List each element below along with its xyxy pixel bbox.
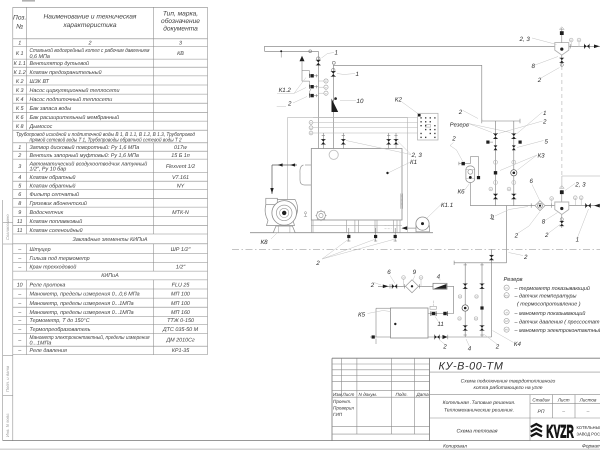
svg-text:Схема тепловая: Схема тепловая (456, 429, 497, 435)
svg-text:м: м (459, 296, 461, 299)
svg-text:К1.1: К1.1 (441, 202, 453, 209)
svg-text:Лист: Лист (342, 392, 355, 397)
svg-text:ШЗК ВТ: ШЗК ВТ (30, 79, 50, 85)
svg-text:м: м (403, 277, 405, 280)
svg-text:NY: NY (177, 183, 185, 189)
svg-text:Штуцер: Штуцер (30, 247, 51, 253)
svg-text:Резерв: Резерв (504, 277, 523, 283)
svg-text:К8: К8 (261, 239, 269, 246)
svg-text:2: 2 (315, 260, 320, 267)
svg-text:1: 1 (576, 236, 579, 243)
svg-text:м: м (508, 188, 510, 191)
svg-text:Проект.: Проект. (333, 399, 351, 404)
svg-text:Котельная .Типовые решения.: Котельная .Типовые решения. (443, 400, 516, 406)
svg-text:2: 2 (287, 101, 292, 108)
svg-text:Водосчетчик: Водосчетчик (30, 210, 64, 216)
svg-text:Клапан соленоидный: Клапан соленоидный (30, 228, 83, 234)
svg-text:м: м (551, 198, 553, 201)
svg-text:м: м (506, 311, 508, 315)
svg-text:1/2": 1/2" (176, 265, 186, 271)
svg-text:ДМ 2010Сг: ДМ 2010Сг (165, 338, 195, 344)
svg-text:тс: тс (505, 293, 509, 297)
svg-text:Клапан предохранительный: Клапан предохранительный (30, 70, 102, 76)
svg-text:– термометр показывающий: – термометр показывающий (514, 286, 590, 292)
svg-text:Вентиль запорный муфтовый: Ру: Вентиль запорный муфтовый: Ру 1,6 МПа (30, 153, 139, 159)
svg-text:Клапан обратный: Клапан обратный (30, 175, 76, 181)
svg-text:м: м (310, 122, 312, 125)
svg-text:0...1МПа: 0...1МПа (30, 340, 52, 346)
svg-text:К 1.1: К 1.1 (14, 61, 26, 67)
svg-text:Бак расширительный мембранный: Бак расширительный мембранный (30, 115, 120, 121)
svg-text:Стадия: Стадия (532, 397, 550, 402)
svg-text:2: 2 (542, 119, 547, 126)
svg-text:Копировал: Копировал (443, 444, 467, 450)
svg-text:КР1-35: КР1-35 (172, 348, 191, 354)
svg-text:1: 1 (356, 71, 359, 78)
svg-text:К6: К6 (458, 188, 466, 195)
svg-text:Фильтр сетчатый: Фильтр сетчатый (30, 192, 79, 198)
svg-text:5: 5 (545, 139, 549, 146)
svg-text:2: 2 (458, 109, 463, 116)
svg-text:3: 3 (179, 40, 182, 46)
svg-text:6: 6 (530, 178, 534, 185)
svg-text:мэ: мэ (505, 328, 509, 332)
svg-text:1: 1 (335, 50, 338, 57)
svg-text:10: 10 (17, 283, 23, 289)
svg-text:К 5: К 5 (16, 106, 25, 112)
svg-text:Манометр, пределы измерения: Манометр, пределы измерения 0...1МПа (30, 301, 134, 307)
svg-text:15 Б 1п: 15 Б 1п (171, 153, 189, 159)
svg-text:Flexvent 1/2: Flexvent 1/2 (166, 164, 195, 170)
svg-text:11: 11 (437, 321, 443, 328)
svg-text:4: 4 (18, 175, 21, 181)
svg-text:Затвор дисковый поворотный: Р: Затвор дисковый поворотный: Ру 1,6 МПа (30, 145, 140, 151)
svg-text:Закладные элементы КИПиА: Закладные элементы КИПиА (73, 237, 148, 243)
svg-text:м: м (475, 318, 477, 321)
svg-text:Термометр, Т до 150°С: Термометр, Т до 150°С (30, 318, 90, 324)
svg-text:К 3: К 3 (16, 88, 24, 94)
svg-text:2, 3: 2, 3 (411, 152, 423, 159)
svg-text:–: – (561, 409, 565, 415)
svg-text:ТТЖ 0-150: ТТЖ 0-150 (167, 318, 194, 324)
svg-text:К 2: К 2 (16, 79, 24, 85)
svg-text:КУ-В-00-ТМ: КУ-В-00-ТМ (439, 361, 504, 373)
svg-text:V7.161: V7.161 (172, 175, 189, 181)
svg-text:Реле протока: Реле протока (30, 283, 66, 289)
svg-text:Насос подпиточный теплосети: Насос подпиточный теплосети (30, 97, 113, 103)
svg-text:м: м (574, 197, 576, 200)
svg-text:Тип, марка,: Тип, марка, (163, 11, 198, 18)
svg-text:К 4: К 4 (16, 97, 24, 103)
svg-text:N докум.: N докум. (359, 392, 378, 397)
svg-text:К4: К4 (514, 341, 522, 348)
svg-text:2, 3: 2, 3 (519, 36, 531, 43)
svg-text:Изм.: Изм. (333, 392, 343, 397)
svg-text:МП 100: МП 100 (171, 292, 190, 298)
svg-text:м: м (580, 197, 582, 200)
svg-text:Манометр, пределы измерения: Манометр, пределы измерения 0...1МПа (30, 310, 134, 316)
svg-text:К5: К5 (358, 311, 366, 318)
svg-text:рд: рд (504, 319, 509, 323)
svg-text:Проверил: Проверил (333, 406, 354, 411)
svg-text:1: 1 (543, 110, 546, 117)
svg-text:К 1: К 1 (16, 51, 24, 57)
svg-text:Поз.: Поз. (13, 15, 26, 22)
svg-text:котла работающего на угле: котла работающего на угле (473, 385, 542, 391)
svg-text:Листов: Листов (579, 397, 597, 402)
svg-text:Подп. и дата: Подп. и дата (5, 365, 10, 392)
svg-text:1/2", Ру 10 бар: 1/2", Ру 10 бар (30, 167, 67, 173)
svg-text:Реле давления: Реле давления (30, 348, 68, 354)
svg-text:К2: К2 (395, 97, 403, 104)
svg-text:м: м (490, 188, 492, 191)
svg-text:К 1.2: К 1.2 (14, 70, 26, 76)
svg-text:м: м (420, 277, 422, 280)
svg-text:К1: К1 (410, 159, 417, 166)
svg-text:Подп.: Подп. (396, 392, 408, 397)
svg-text:11: 11 (17, 228, 23, 234)
svg-text:Инв. N подл.: Инв. N подл. (5, 413, 10, 437)
svg-text:– манометр показывающий: – манометр показывающий (514, 311, 586, 317)
svg-text:Насос циркуляционный теплосети: Насос циркуляционный теплосети (30, 88, 120, 94)
svg-text:обозначение: обозначение (161, 18, 200, 25)
svg-text:10: 10 (357, 98, 364, 105)
svg-text:Кран трехходовой: Кран трехходовой (30, 265, 77, 271)
svg-text:–: – (586, 409, 590, 415)
svg-text:– датчик температуры: – датчик температуры (514, 294, 577, 300)
svg-text:ШР 1/2": ШР 1/2" (171, 247, 192, 253)
svg-text:2: 2 (523, 254, 528, 261)
svg-text:Клапан поплавковый: Клапан поплавковый (30, 219, 83, 225)
svg-text:2: 2 (88, 40, 92, 46)
svg-text:К 6: К 6 (16, 115, 24, 121)
svg-text:4: 4 (468, 345, 472, 352)
svg-text:6: 6 (18, 192, 21, 198)
svg-text:2: 2 (514, 233, 519, 240)
svg-text:6: 6 (387, 269, 391, 276)
svg-text:К3: К3 (538, 153, 546, 160)
svg-text:Клапан обратный: Клапан обратный (30, 183, 76, 189)
svg-text:РП: РП (538, 409, 545, 415)
svg-text:11: 11 (17, 219, 23, 225)
svg-text:Гильза под термометр: Гильза под термометр (30, 256, 90, 262)
svg-text:Лист: Лист (557, 397, 570, 402)
svg-text:0,6 МПа: 0,6 МПа (30, 54, 50, 60)
svg-text:KVZR: KVZR (546, 422, 573, 442)
svg-text:м: м (310, 127, 312, 130)
svg-text:КВ: КВ (177, 51, 184, 57)
svg-text:017w: 017w (174, 145, 188, 151)
svg-text:1: 1 (18, 145, 21, 151)
svg-text:прямой сетевой воды Т 1, Труб: прямой сетевой воды Т 1, Трубопроводы об… (30, 138, 182, 144)
svg-text:КОТЕЛЬНЫЙ: КОТЕЛЬНЫЙ (577, 425, 600, 430)
svg-text:№: № (16, 24, 23, 31)
svg-text:м: м (476, 296, 478, 299)
svg-text:1: 1 (18, 40, 21, 46)
svg-text:Термопреобразователь: Термопреобразователь (30, 327, 91, 333)
svg-text:МП 100: МП 100 (171, 301, 190, 307)
svg-text:Дымосос: Дымосос (29, 124, 53, 130)
svg-text:К1.2: К1.2 (279, 87, 292, 94)
svg-text:ЗАВОД РОСС: ЗАВОД РОСС (577, 432, 600, 437)
svg-text:МП 160: МП 160 (171, 310, 190, 316)
svg-text:м: м (578, 39, 580, 42)
svg-text:Грязевик абонентский: Грязевик абонентский (30, 201, 87, 207)
svg-text:К 8: К 8 (16, 124, 24, 130)
svg-text:МТК-N: МТК-N (172, 210, 189, 216)
svg-text:Согласовано: Согласовано (5, 214, 10, 240)
svg-text:Формат А2: Формат А2 (582, 444, 600, 450)
svg-text:8: 8 (532, 63, 536, 70)
svg-text:2, 3: 2, 3 (574, 181, 586, 188)
svg-text:1: 1 (490, 214, 493, 221)
svg-text:2: 2 (370, 282, 375, 289)
svg-text:FLU 25: FLU 25 (172, 283, 191, 289)
svg-text:9: 9 (18, 210, 21, 216)
svg-text:– манометр электроконтактный: – манометр электроконтактный (514, 328, 600, 334)
svg-text:Наименование и техническая: Наименование и техническая (44, 14, 137, 21)
svg-text:м: м (459, 318, 461, 321)
svg-text:м: м (570, 39, 572, 42)
svg-text:Вентилятор дутьевой: Вентилятор дутьевой (30, 61, 90, 67)
svg-text:Манометр, пределы измерения: Манометр, пределы измерения 0...0,6 МПа (30, 292, 140, 298)
svg-text:характеристика: характеристика (62, 22, 116, 29)
svg-text:Схема подключения твердотоплив: Схема подключения твердотопливного (461, 378, 556, 384)
svg-text:Тепломеханические решения.: Тепломеханические решения. (444, 408, 514, 414)
svg-text:9: 9 (413, 269, 417, 276)
svg-text:2: 2 (17, 153, 21, 159)
svg-text:Бак запаса воды: Бак запаса воды (30, 106, 72, 112)
svg-text:ДТС 035-50 М: ДТС 035-50 М (162, 327, 199, 333)
svg-text:документа: документа (163, 26, 198, 33)
svg-text:Резерв: Резерв (450, 123, 469, 129)
svg-text:Дата: Дата (416, 392, 430, 397)
svg-text:3: 3 (18, 164, 21, 170)
svg-text:ГИП: ГИП (333, 412, 343, 417)
svg-text:8: 8 (18, 201, 21, 207)
svg-text:2: 2 (451, 136, 456, 143)
svg-text:8: 8 (542, 218, 546, 225)
svg-text:КИПиА: КИПиА (101, 273, 119, 279)
svg-text:( термосопротивление ): ( термосопротивление ) (517, 301, 581, 307)
svg-text:м: м (310, 132, 312, 135)
svg-text:– датчик давления ( прессоста: – датчик давления ( прессостат ) (514, 319, 600, 325)
